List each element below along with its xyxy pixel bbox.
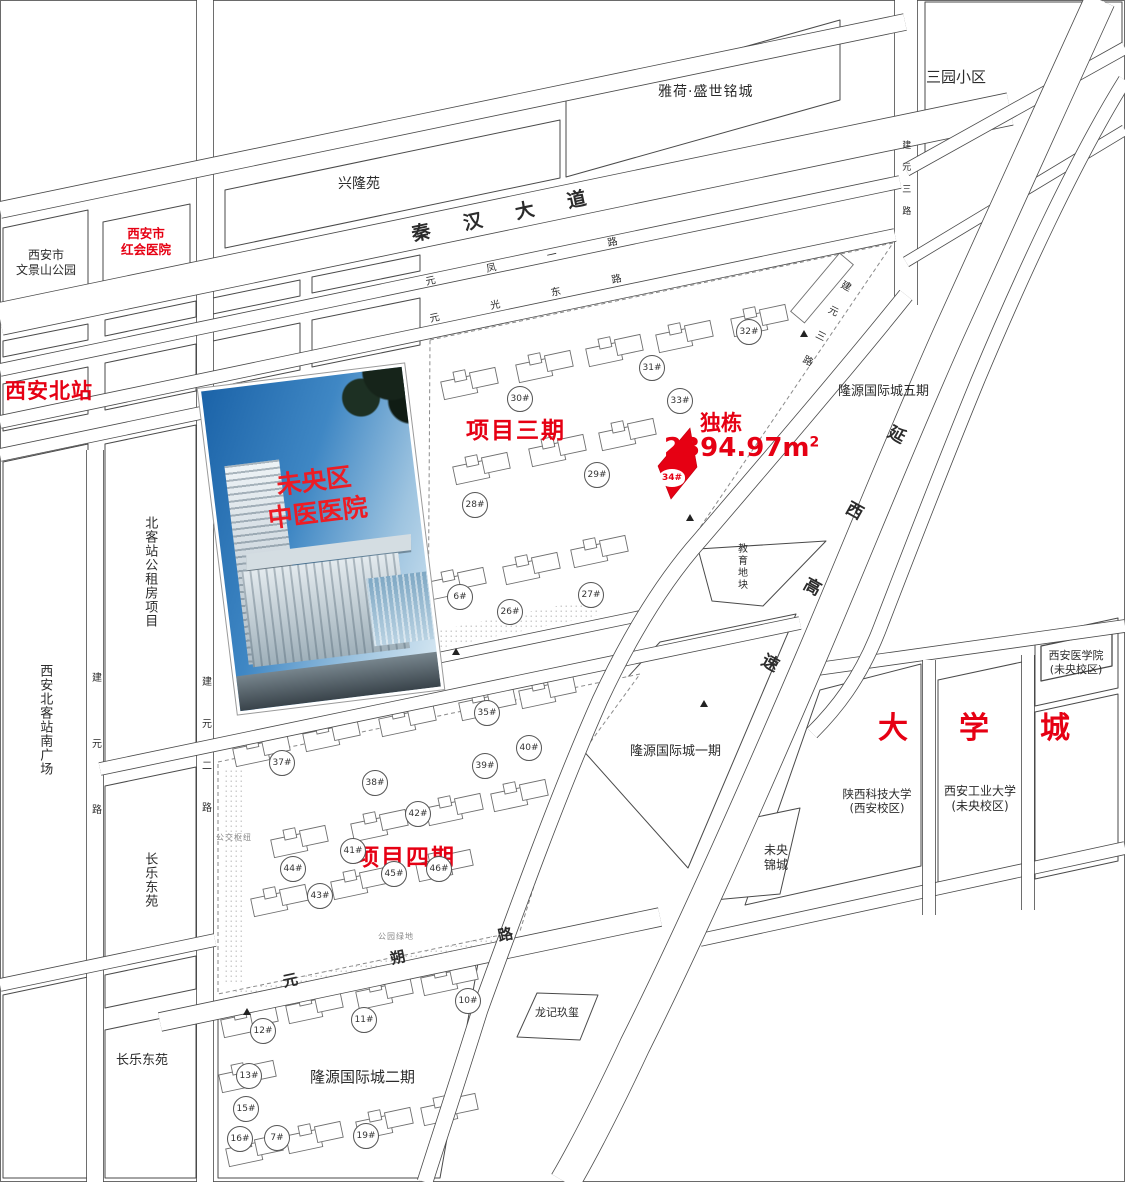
building-badge: 7#	[264, 1125, 290, 1151]
label-project-phase3: 项目三期	[466, 417, 566, 446]
building-badge: 39#	[472, 753, 498, 779]
building-badge: 27#	[578, 582, 604, 608]
building-badge: 46#	[426, 856, 452, 882]
label-longyuan-phase1: 隆源国际城一期	[630, 744, 721, 760]
label-wenjingshan-line2: 文景山公园	[6, 263, 86, 278]
label-sanyuan: 三园小区	[926, 68, 986, 87]
building-badge: 35#	[474, 700, 500, 726]
road-label-jianyuan-2nd: 建元二路	[198, 676, 211, 844]
label-longyuan-phase5: 隆源国际城五期	[838, 384, 929, 400]
building-badge: 15#	[233, 1096, 259, 1122]
label-shaanxi-ust-line1: 陕西科技大学	[830, 787, 924, 801]
hospital-rendering: 未央区 中医医院	[201, 367, 441, 711]
building-badge: 42#	[405, 801, 431, 827]
building-badge: 45#	[381, 861, 407, 887]
label-wenjingshan-line1: 西安市	[6, 248, 86, 263]
label-honghui-hospital: 西安市 红会医院	[101, 226, 191, 257]
building-badge: 16#	[227, 1126, 253, 1152]
label-xian-medical-line2: (未央校区)	[1036, 663, 1116, 677]
label-parcel-area: 2394.97m2	[664, 432, 819, 465]
label-longji-jiuxi: 龙记玖玺	[535, 1006, 579, 1020]
label-xian-tech-line1: 西安工业大学	[934, 784, 1026, 799]
label-xian-tech-univ: 西安工业大学 (未央校区)	[934, 784, 1026, 814]
building-badge: 41#	[340, 838, 366, 864]
label-xian-medical-line1: 西安医学院	[1036, 649, 1116, 663]
building-badge: 13#	[236, 1063, 262, 1089]
label-changle-east-mid: 长乐东苑	[141, 852, 157, 908]
entrance-marker-icon	[452, 648, 460, 655]
building-badge: 37#	[269, 750, 295, 776]
building-badge: 19#	[353, 1123, 379, 1149]
building-badge: 12#	[250, 1018, 276, 1044]
label-shaanxi-ust-line2: (西安校区)	[830, 801, 924, 815]
label-xian-north-station: 西安北站	[5, 378, 93, 404]
building-badge: 33#	[667, 388, 693, 414]
building-badge: 32#	[736, 319, 762, 345]
entrance-marker-icon	[800, 330, 808, 337]
label-yahe: 雅荷·盛世铭城	[658, 84, 753, 102]
badge-34: 34#	[659, 469, 685, 487]
label-park-green: 公园绿地	[378, 932, 414, 942]
label-wenjingshan: 西安市 文景山公园	[6, 248, 86, 278]
label-university-town: 大学城	[878, 710, 1121, 748]
building-badge: 40#	[516, 735, 542, 761]
building-badge: 10#	[455, 988, 481, 1014]
building-badge: 44#	[280, 856, 306, 882]
building-badge: 11#	[351, 1007, 377, 1033]
label-honghui-line1: 西安市	[101, 226, 191, 242]
entrance-marker-icon	[700, 700, 708, 707]
building-badge: 43#	[307, 883, 333, 909]
label-changle-east-bottom: 长乐东苑	[116, 1053, 168, 1069]
parcel-area-sup: 2	[810, 434, 820, 450]
building-badge: 26#	[497, 599, 523, 625]
label-xinglongyuan: 兴隆苑	[338, 176, 380, 194]
hospital-glass-wing	[367, 571, 435, 645]
road-label-jianyuan-3rd-top: 建元三路	[899, 140, 910, 228]
hospital-photo: 未央区 中医医院	[197, 362, 446, 715]
entrance-marker-icon	[243, 1008, 251, 1015]
label-xian-medical-college: 西安医学院 (未央校区)	[1036, 649, 1116, 677]
road-label-jianyuan: 建元路	[88, 672, 101, 870]
label-gongzufang: 北客站公租房项目	[141, 516, 157, 628]
building-badge: 29#	[584, 462, 610, 488]
location-map: 未央区 中医医院 三园小区 雅荷·盛世铭城 兴隆苑 西安市 文景山公园 西安市 …	[0, 0, 1125, 1182]
label-honghui-line2: 红会医院	[101, 242, 191, 258]
building-badge: 28#	[462, 492, 488, 518]
label-shaanxi-ust: 陕西科技大学 (西安校区)	[830, 787, 924, 816]
parcel-area-value: 2394.97m	[664, 433, 810, 463]
map-base	[0, 0, 1125, 1182]
building-badge: 38#	[362, 770, 388, 796]
building-badge: 31#	[639, 355, 665, 381]
building-badge: 30#	[507, 386, 533, 412]
label-xian-tech-line2: (未央校区)	[934, 799, 1026, 814]
entrance-marker-icon	[686, 514, 694, 521]
building-badge: 6#	[447, 584, 473, 610]
label-education-plot: 教育地块	[734, 543, 747, 591]
label-south-square: 西安北客站南广场	[36, 664, 52, 776]
label-bus-hub: 公交枢纽	[216, 833, 252, 843]
label-weiyang-jincheng: 未央锦城	[749, 843, 803, 873]
label-longyuan-phase2: 隆源国际城二期	[310, 1068, 415, 1087]
